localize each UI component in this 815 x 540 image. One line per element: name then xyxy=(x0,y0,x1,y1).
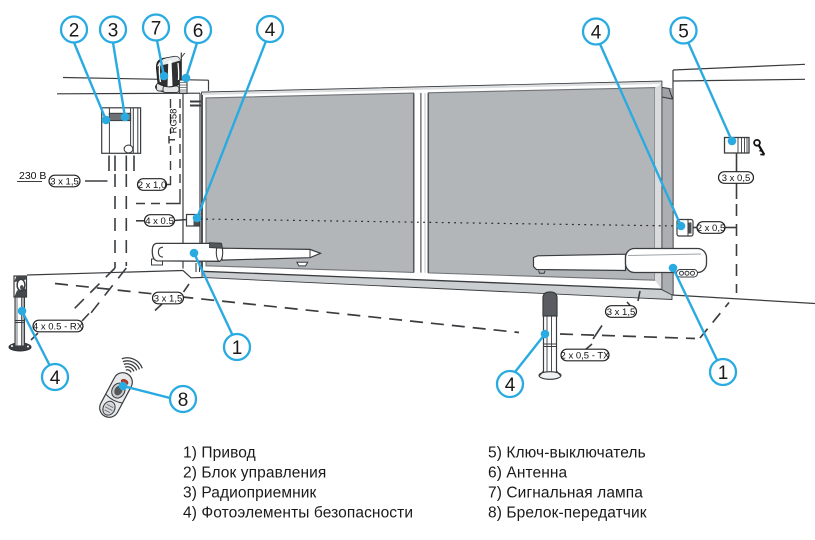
svg-text:2 x 0,5: 2 x 0,5 xyxy=(697,223,726,234)
svg-text:2: 2 xyxy=(69,21,80,42)
svg-text:3 x 1,5: 3 x 1,5 xyxy=(50,176,79,187)
svg-text:7: 7 xyxy=(151,19,162,40)
svg-text:6: 6 xyxy=(193,21,204,42)
svg-text:4) Фотоэлементы безопасности: 4) Фотоэлементы безопасности xyxy=(183,505,413,522)
svg-text:3: 3 xyxy=(108,21,119,42)
svg-text:4 x 0.5: 4 x 0.5 xyxy=(145,216,174,227)
svg-text:4: 4 xyxy=(50,368,61,389)
svg-text:3 x 0,5: 3 x 0,5 xyxy=(722,173,751,184)
svg-text:1: 1 xyxy=(232,338,243,359)
svg-text:4: 4 xyxy=(591,23,602,44)
svg-text:2) Блок управления: 2) Блок управления xyxy=(183,465,326,482)
svg-text:RG58: RG58 xyxy=(169,109,180,134)
svg-text:8) Брелок-передатчик: 8) Брелок-передатчик xyxy=(488,505,647,522)
svg-text:8: 8 xyxy=(178,390,189,411)
svg-text:2 x 1,0: 2 x 1,0 xyxy=(138,180,167,191)
svg-text:4 x 0.5 - RX: 4 x 0.5 - RX xyxy=(33,321,84,332)
svg-text:230 В: 230 В xyxy=(19,170,46,182)
svg-text:3) Радиоприемник: 3) Радиоприемник xyxy=(183,485,317,502)
svg-text:4: 4 xyxy=(265,20,276,41)
svg-text:7) Сигнальная лампа: 7) Сигнальная лампа xyxy=(488,485,643,502)
svg-text:1: 1 xyxy=(718,363,729,384)
svg-text:5: 5 xyxy=(678,22,689,43)
svg-text:3 x 1,5: 3 x 1,5 xyxy=(154,293,183,304)
svg-text:5) Ключ-выключатель: 5) Ключ-выключатель xyxy=(488,444,646,461)
svg-text:2 x 0,5 - TX: 2 x 0,5 - TX xyxy=(561,350,611,361)
svg-text:4: 4 xyxy=(505,375,516,396)
svg-text:6) Антенна: 6) Антенна xyxy=(488,465,568,482)
svg-text:3 x 1,5: 3 x 1,5 xyxy=(607,307,636,318)
svg-text:1) Привод: 1) Привод xyxy=(183,444,256,461)
